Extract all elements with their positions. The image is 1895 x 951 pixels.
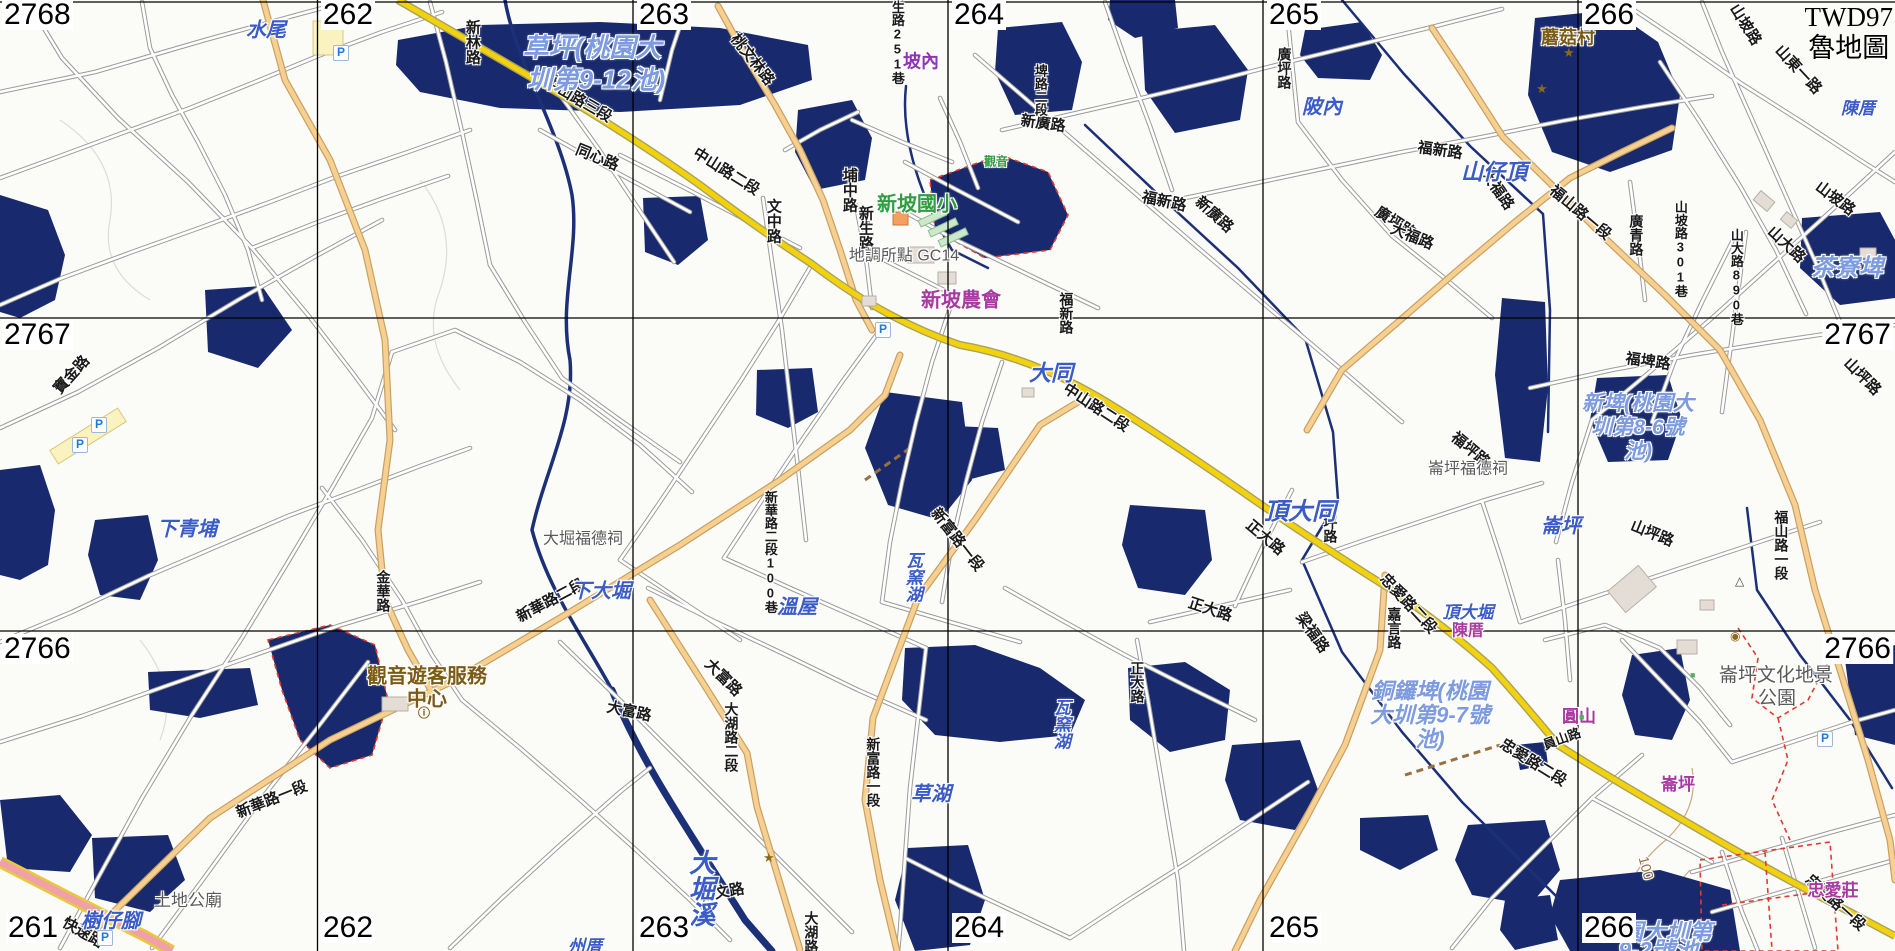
road-label: 大湖路二段 (724, 702, 739, 772)
road-label: 新華路一段 (234, 779, 309, 822)
grid-coordinate-label: 261 (6, 913, 60, 943)
map-label: 溫屋 (777, 598, 817, 619)
road-label: 同心路 (573, 142, 621, 173)
road-label: 新生路251巷 (890, 0, 904, 85)
map-label: 山仔頂 (1461, 160, 1527, 183)
crs-label: TWD97 (1805, 2, 1893, 33)
road-label: 中山路二段 (690, 145, 762, 198)
road-label: 寶金路 (51, 353, 93, 397)
map-label: 大同 (1029, 361, 1073, 384)
info-icon: ⓘ (418, 707, 430, 719)
map-label: 新坡農會 (921, 291, 1001, 312)
road-label: 梁福路 (1293, 610, 1332, 656)
star-icon: ★ (1563, 46, 1575, 59)
map-label: 池) (1624, 441, 1652, 463)
road-label: 山大路890巷 (1729, 229, 1743, 326)
parking-icon: P (875, 322, 891, 338)
map-attribution: TWD97 魯地圖 (1805, 2, 1893, 64)
map-label: 崙坪福德祠 (1428, 462, 1508, 479)
road-label: 新富路一段 (928, 506, 987, 575)
map-label: 陳厝 (1841, 100, 1875, 118)
road-label: 大湖路 (804, 911, 819, 951)
road-label: 新林路 (464, 20, 480, 65)
road-label: 新華路二段100巷 (763, 491, 777, 614)
map-label: 池) (1415, 727, 1444, 750)
map-label: 忠愛莊 (1808, 882, 1859, 900)
road-label: 新廣路 (1020, 113, 1067, 135)
grid-coordinate-label: 265 (1267, 913, 1321, 943)
map-label: 水尾 (246, 21, 286, 42)
map-label: 大堀福德祠 (543, 532, 623, 549)
map-label: 土地公廟 (154, 892, 222, 910)
map-labels-layer: 新林路桃文林路中山路三段同心路中山路二段埔中路文中路新生路新生路251巷新廣路埤… (0, 0, 1895, 951)
road-label: 金華路 (376, 570, 391, 612)
star-icon: ★ (1536, 82, 1548, 95)
map-canvas[interactable]: 新林路桃文林路中山路三段同心路中山路二段埔中路文中路新生路新生路251巷新廣路埤… (0, 0, 1895, 951)
triangle-survey-icon: △ (1735, 575, 1744, 587)
map-label: 地調所點 GC14 (849, 249, 959, 266)
map-label: 大圳第9-7號 (1370, 703, 1490, 726)
grid-coordinate-label: 262 (321, 0, 375, 30)
map-label: 頂大同 (1264, 499, 1336, 524)
grid-coordinate-label: 2766 (2, 634, 73, 664)
map-label: 陂內 (1302, 98, 1342, 119)
road-label: 山坡路 (1726, 2, 1763, 49)
road-label: 山坪路 (1841, 356, 1884, 399)
map-label: 坡內 (903, 53, 939, 72)
survey-point-icon: ▫ (865, 215, 870, 229)
grid-coordinate-label: 265 (1267, 0, 1321, 30)
road-label: 文中路 (765, 199, 781, 244)
map-label: 圳第8-6號 (1591, 417, 1684, 439)
well-icon: ◉ (1730, 630, 1740, 642)
parking-icon: P (1817, 731, 1833, 747)
map-label: 100 (1636, 855, 1656, 881)
map-label: 瓦窯湖 (1051, 699, 1069, 750)
parking-icon: P (97, 930, 113, 946)
road-label: 正大路 (1186, 596, 1234, 625)
map-label: 新坡國小 (877, 195, 957, 216)
road-label: 嘉言路 (1387, 607, 1402, 649)
map-label: 瓦窯湖 (903, 552, 921, 603)
map-label: 草湖 (911, 785, 951, 806)
map-label: 崙坪文化地景 (1719, 666, 1833, 686)
map-label: 陳厝 (1452, 624, 1484, 641)
grid-coordinate-label: 263 (637, 913, 691, 943)
map-label: 觀音 (984, 156, 1008, 169)
grid-coordinate-label: 263 (637, 0, 691, 30)
map-label: 州厝 (568, 938, 602, 951)
map-label: 新埤(桃園大 (1582, 393, 1694, 415)
parking-icon: P (333, 45, 349, 61)
road-label: 新廣路 (1192, 194, 1236, 236)
parking-icon: P (72, 437, 88, 453)
road-label: 桃文林路 (727, 32, 776, 89)
road-label: 廣坪路 (1277, 47, 1292, 89)
grid-coordinate-label: 2766 (1822, 634, 1893, 664)
map-label: 公園 (1758, 689, 1796, 709)
map-label: 下大堀 (571, 582, 631, 603)
parking-icon: P (91, 417, 107, 433)
road-label: 福新路 (1417, 140, 1464, 162)
grid-coordinate-label: 264 (952, 913, 1006, 943)
road-label: 大富路 (605, 700, 652, 725)
road-label: 正大路 (1130, 661, 1145, 703)
map-style-label: 魯地圖 (1805, 33, 1893, 64)
road-label: 山大路 (1764, 224, 1808, 266)
road-label: 福山路一段 (1546, 183, 1614, 243)
grid-coordinate-label: 2768 (2, 0, 73, 30)
road-label: 福新路 (1140, 190, 1187, 215)
road-label: 新富路一段 (866, 737, 881, 807)
map-label: 觀音遊客服務 (367, 667, 487, 688)
road-label: 廣青路 (1629, 214, 1644, 256)
map-label: 圳第9-12池) (527, 66, 666, 93)
grid-coordinate-label: 264 (952, 0, 1006, 30)
map-label: 銅鑼埤(桃園 (1371, 679, 1488, 702)
road-label: 山坪路 (1628, 518, 1676, 549)
grid-coordinate-label: 266 (1582, 0, 1636, 30)
road-label: 福山路一段 (1774, 510, 1789, 580)
road-label: 福埤路 (1625, 351, 1672, 373)
road-label: 福新路 (1059, 292, 1074, 334)
map-label: 茶寮埤 (1811, 255, 1883, 280)
grid-coordinate-label: 262 (321, 913, 375, 943)
grid-coordinate-label: 2767 (1822, 320, 1893, 350)
vegetation-icon: ■ (1579, 713, 1584, 722)
map-label: 崙坪 (1541, 517, 1581, 538)
road-label: 埤路二段 (1033, 64, 1047, 116)
map-label: 下青埔 (157, 520, 217, 541)
road-label: 中山路二段 (1060, 381, 1131, 435)
road-label: 員山路 (1541, 726, 1582, 752)
grid-coordinate-label: 266 (1582, 913, 1636, 943)
road-label: 大富路 (702, 657, 745, 700)
road-label: 埔中路 (841, 168, 857, 213)
map-label: 頂大堀 (1443, 604, 1494, 622)
map-label: 草坪(桃園大 (523, 34, 662, 61)
road-label: 山坡路 (1812, 179, 1857, 219)
vegetation-icon: ■ (1690, 671, 1695, 680)
road-label: 山坡路301巷 (1673, 201, 1687, 298)
map-label: 崙坪 (1661, 776, 1695, 794)
grid-coordinate-label: 2767 (2, 320, 73, 350)
star-icon: ★ (763, 851, 775, 864)
